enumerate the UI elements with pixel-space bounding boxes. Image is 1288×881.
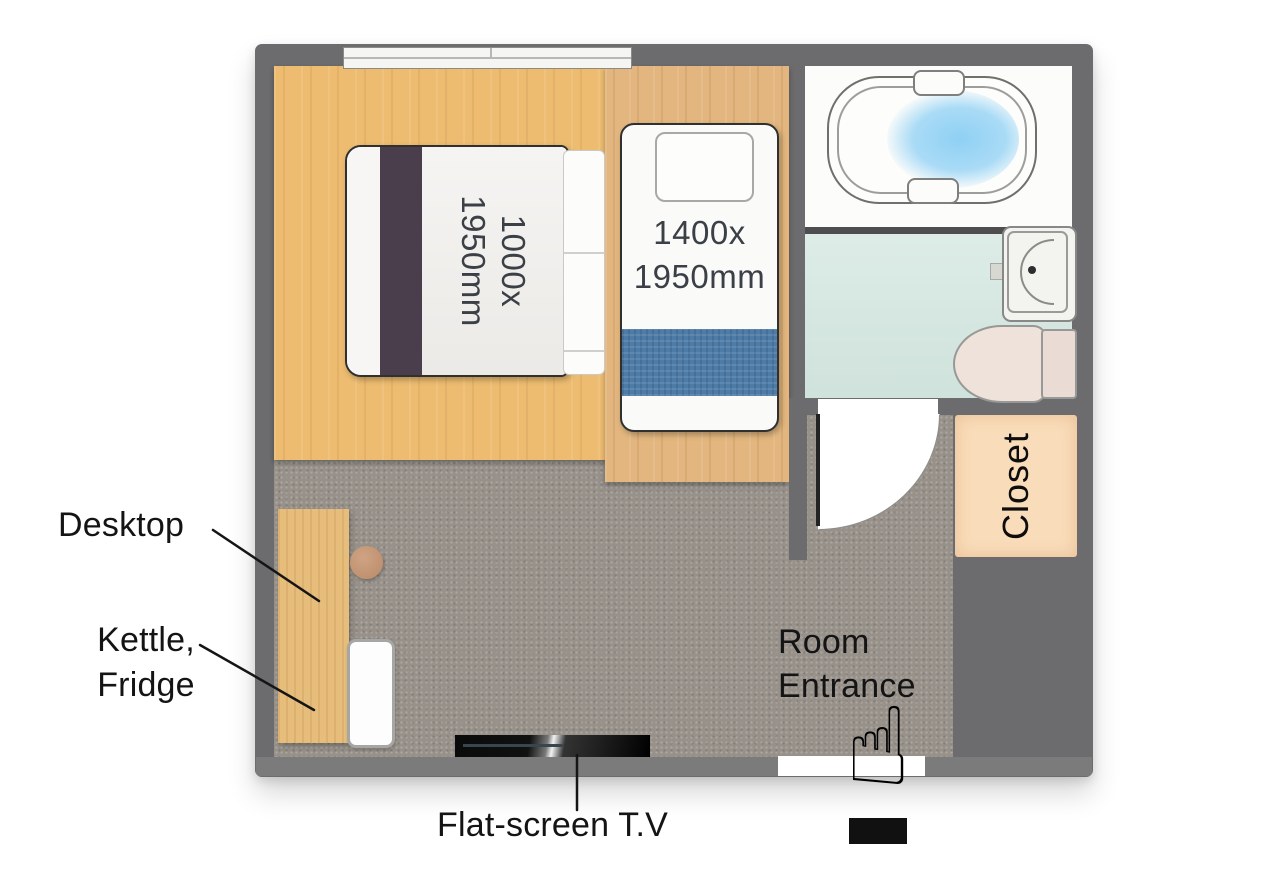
window [343, 47, 632, 69]
single-bed-blanket [622, 329, 777, 396]
pillow-gap-line [564, 252, 604, 254]
kettle-label-line1: Kettle, [80, 618, 212, 663]
double-bed-size-label: 1000x 1950mm [453, 195, 533, 326]
desk [278, 509, 349, 743]
sink [1002, 226, 1077, 322]
tv-screen-line [463, 744, 563, 747]
bathtub [827, 76, 1037, 204]
toilet-bowl [953, 325, 1047, 403]
flat-screen-tv [455, 735, 650, 757]
single-bed-size-line2: 1950mm [622, 255, 777, 299]
double-bed-size-line1: 1000x [493, 195, 533, 326]
closet-label: Closet [995, 432, 1037, 540]
single-bed-pillow [655, 132, 754, 202]
hallway-wall [789, 398, 807, 560]
sink-bowl-drawing [1004, 228, 1071, 316]
single-bed: 1400x 1950mm [620, 123, 779, 432]
stool [350, 546, 383, 579]
bathroom-door-leaf [816, 414, 820, 526]
double-bed-pillows [563, 150, 605, 375]
pointing-hand-icon: ☝ [826, 694, 930, 802]
window-divider [490, 48, 492, 57]
window-sill-line [344, 57, 631, 59]
bathroom-door-opening [818, 399, 938, 415]
closet: Closet [955, 415, 1077, 557]
kettle-fridge-label: Kettle, Fridge [80, 618, 212, 708]
hand-icon-base [849, 818, 907, 844]
single-bed-size-line1: 1400x [622, 211, 777, 255]
double-bed-sheet [347, 147, 380, 375]
kettle-label-line2: Fridge [80, 663, 212, 708]
floor-plan: Closet 1000x 1950mm 1400x 1950mm [0, 0, 1288, 881]
double-bed-size-line2: 1950mm [453, 195, 493, 326]
tv-label: Flat-screen T.V [437, 806, 668, 845]
bottom-wall [256, 757, 1092, 776]
toilet-tank [1041, 329, 1077, 399]
double-bed-headboard-band [380, 147, 422, 375]
bathtub-handle [913, 70, 965, 96]
fridge-unit [347, 639, 395, 748]
bathtub-water [887, 90, 1019, 188]
pillow-gap-line [564, 350, 604, 352]
bathtub-handle [907, 178, 959, 204]
double-bed: 1000x 1950mm [345, 145, 569, 377]
entrance-label-line1: Room [778, 620, 916, 664]
desktop-label: Desktop [58, 506, 184, 545]
single-bed-size-label: 1400x 1950mm [622, 211, 777, 299]
